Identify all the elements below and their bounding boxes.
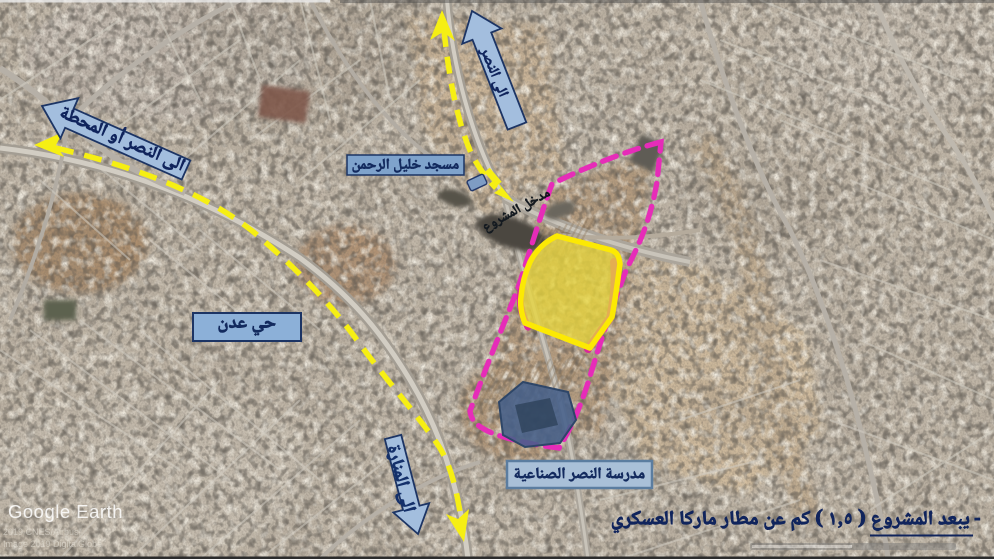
svg-text:Image 2019 DigitalGlobe: Image 2019 DigitalGlobe bbox=[3, 539, 102, 549]
svg-text:2019 CNES/Airbus: 2019 CNES/Airbus bbox=[3, 527, 79, 537]
svg-text:Google Earth: Google Earth bbox=[8, 501, 123, 522]
